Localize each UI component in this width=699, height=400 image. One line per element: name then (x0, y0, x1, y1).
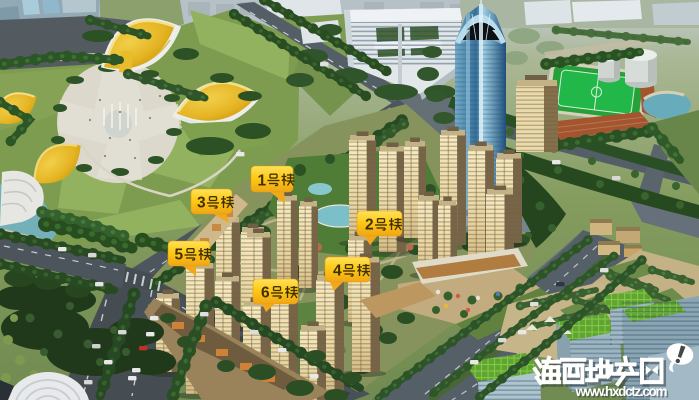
svg-text:3: 3 (197, 195, 206, 212)
svg-text:2: 2 (365, 217, 374, 234)
svg-text:4: 4 (333, 263, 342, 280)
svg-text:www.hxdctz.com: www.hxdctz.com (575, 384, 668, 399)
svg-text:6: 6 (261, 285, 270, 302)
svg-text:5: 5 (175, 247, 184, 264)
svg-text:1: 1 (258, 173, 267, 190)
